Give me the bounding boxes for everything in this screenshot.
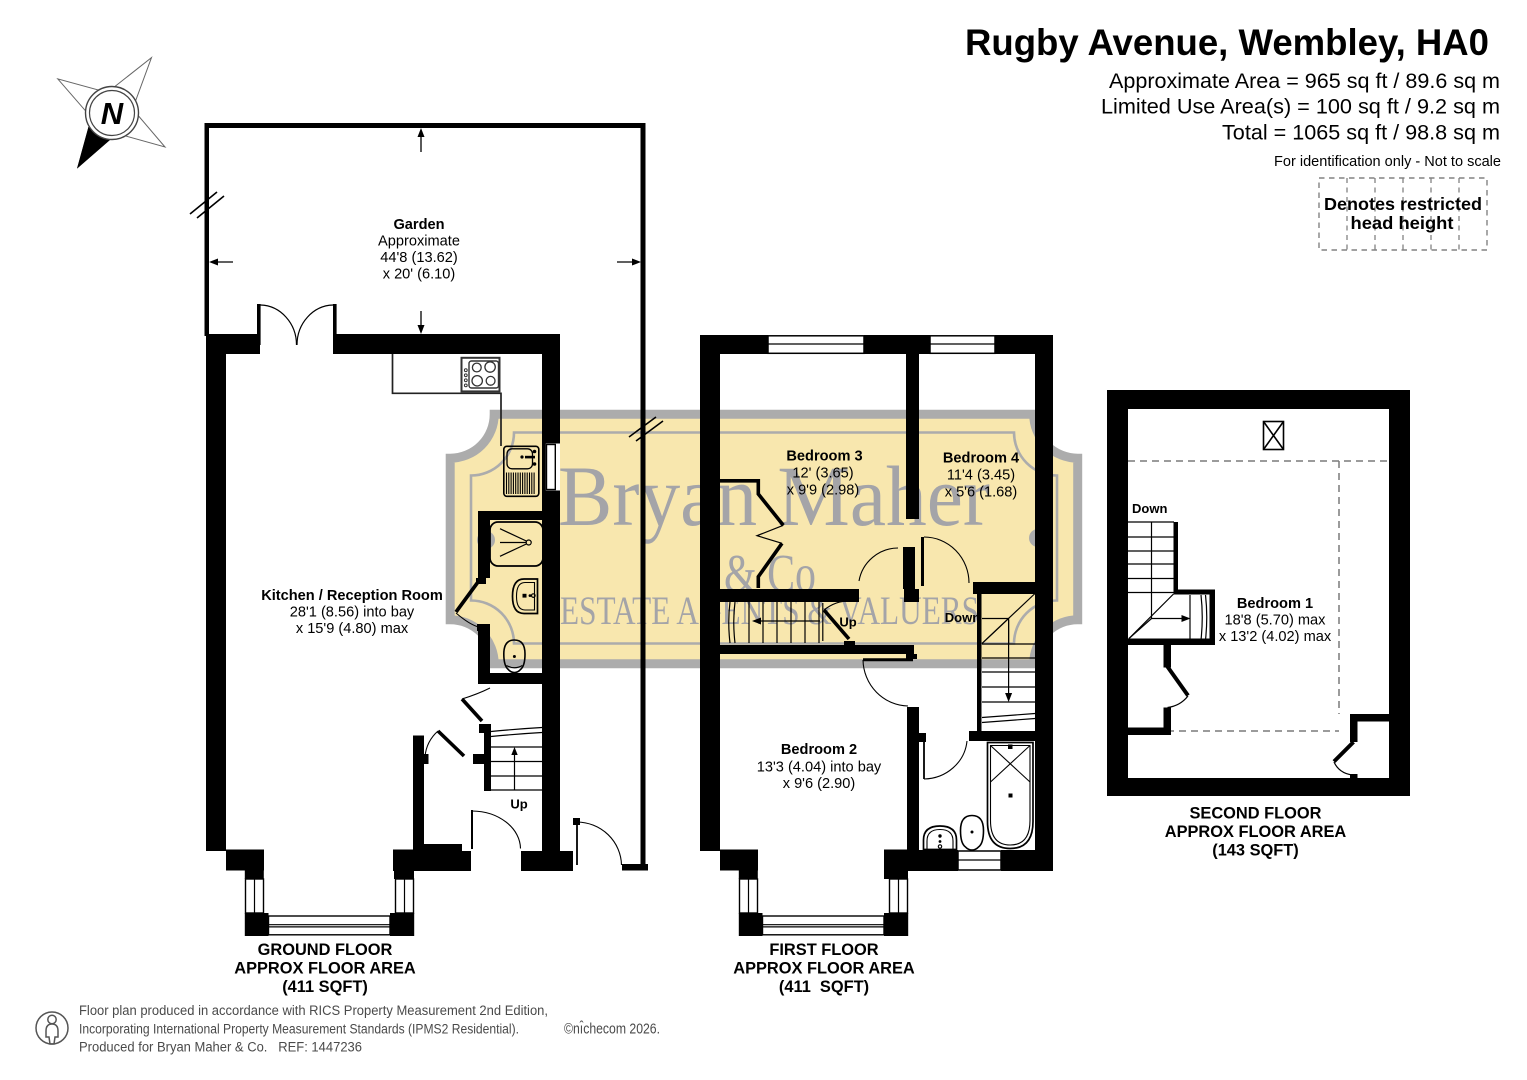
svg-text:Limited Use Area(s) = 100 sq f: Limited Use Area(s) = 100 sq ft / 9.2 sq… bbox=[1101, 95, 1500, 119]
svg-text:13'3 (4.04) into bay: 13'3 (4.04) into bay bbox=[757, 760, 882, 776]
svg-text:x 20' (6.10): x 20' (6.10) bbox=[383, 267, 456, 283]
svg-text:x 5'6 (1.68): x 5'6 (1.68) bbox=[945, 485, 1018, 501]
svg-text:(143 SQFT): (143 SQFT) bbox=[1212, 842, 1299, 860]
svg-text:(411 SQFT): (411 SQFT) bbox=[282, 978, 368, 996]
svg-text:18'8 (5.70) max: 18'8 (5.70) max bbox=[1225, 613, 1327, 629]
svg-text:Floor plan produced in accorda: Floor plan produced in accordance with R… bbox=[79, 1003, 548, 1018]
svg-text:Approximate: Approximate bbox=[378, 234, 460, 250]
svg-text:x 9'6 (2.90): x 9'6 (2.90) bbox=[783, 776, 856, 792]
svg-text:x 9'9 (2.98): x 9'9 (2.98) bbox=[787, 483, 860, 499]
svg-text:Garden: Garden bbox=[393, 217, 444, 233]
svg-text:x 15'9 (4.80) max: x 15'9 (4.80) max bbox=[296, 621, 409, 637]
svg-text:(411 SQFT): (411 SQFT) bbox=[779, 978, 869, 996]
svg-text:Incorporating International Pr: Incorporating International Property Mea… bbox=[79, 1021, 519, 1036]
svg-text:Up: Up bbox=[839, 615, 856, 630]
svg-text:Kitchen / Reception Room: Kitchen / Reception Room bbox=[261, 588, 443, 604]
svg-text:FIRST FLOOR: FIRST FLOOR bbox=[769, 941, 878, 959]
svg-text:Produced for Bryan Maher & Co.: Produced for Bryan Maher & Co. REF: 1447… bbox=[79, 1040, 362, 1055]
svg-text:SECOND FLOOR: SECOND FLOOR bbox=[1189, 805, 1321, 823]
svg-text:Down: Down bbox=[945, 610, 980, 625]
svg-text:GROUND FLOOR: GROUND FLOOR bbox=[258, 941, 393, 959]
svg-text:x 13'2 (4.02) max: x 13'2 (4.02) max bbox=[1219, 629, 1332, 645]
svg-text:Bedroom 3: Bedroom 3 bbox=[786, 449, 862, 465]
svg-text:Bedroom 2: Bedroom 2 bbox=[781, 742, 857, 758]
svg-text:12' (3.65): 12' (3.65) bbox=[792, 466, 853, 482]
svg-text:N: N bbox=[101, 96, 124, 131]
svg-text:Rugby Avenue, Wembley, HA0: Rugby Avenue, Wembley, HA0 bbox=[965, 22, 1489, 63]
svg-text:APPROX FLOOR AREA: APPROX FLOOR AREA bbox=[733, 960, 915, 978]
svg-text:Up: Up bbox=[510, 797, 527, 812]
svg-text:11'4 (3.45): 11'4 (3.45) bbox=[947, 468, 1015, 484]
svg-text:28'1 (8.56) into bay: 28'1 (8.56) into bay bbox=[290, 605, 415, 621]
svg-text:44'8 (13.62): 44'8 (13.62) bbox=[380, 250, 457, 266]
svg-text:head height: head height bbox=[1351, 213, 1454, 233]
svg-text:Denotes restricted: Denotes restricted bbox=[1324, 194, 1482, 214]
svg-text:For identification only - Not: For identification only - Not to scale bbox=[1274, 153, 1501, 170]
svg-text:Approximate Area = 965 sq ft /: Approximate Area = 965 sq ft / 89.6 sq m bbox=[1109, 69, 1500, 93]
svg-text:Total = 1065 sq ft / 98.8 sq m: Total = 1065 sq ft / 98.8 sq m bbox=[1222, 120, 1500, 144]
svg-text:Bedroom 4: Bedroom 4 bbox=[943, 451, 1020, 467]
svg-text:APPROX FLOOR AREA: APPROX FLOOR AREA bbox=[1165, 823, 1347, 841]
svg-text:Down: Down bbox=[1132, 501, 1167, 516]
svg-text:Bedroom 1: Bedroom 1 bbox=[1237, 596, 1313, 612]
svg-text:©nı̂checom 2026.: ©nı̂checom 2026. bbox=[564, 1020, 660, 1037]
svg-text:APPROX FLOOR AREA: APPROX FLOOR AREA bbox=[234, 960, 416, 978]
